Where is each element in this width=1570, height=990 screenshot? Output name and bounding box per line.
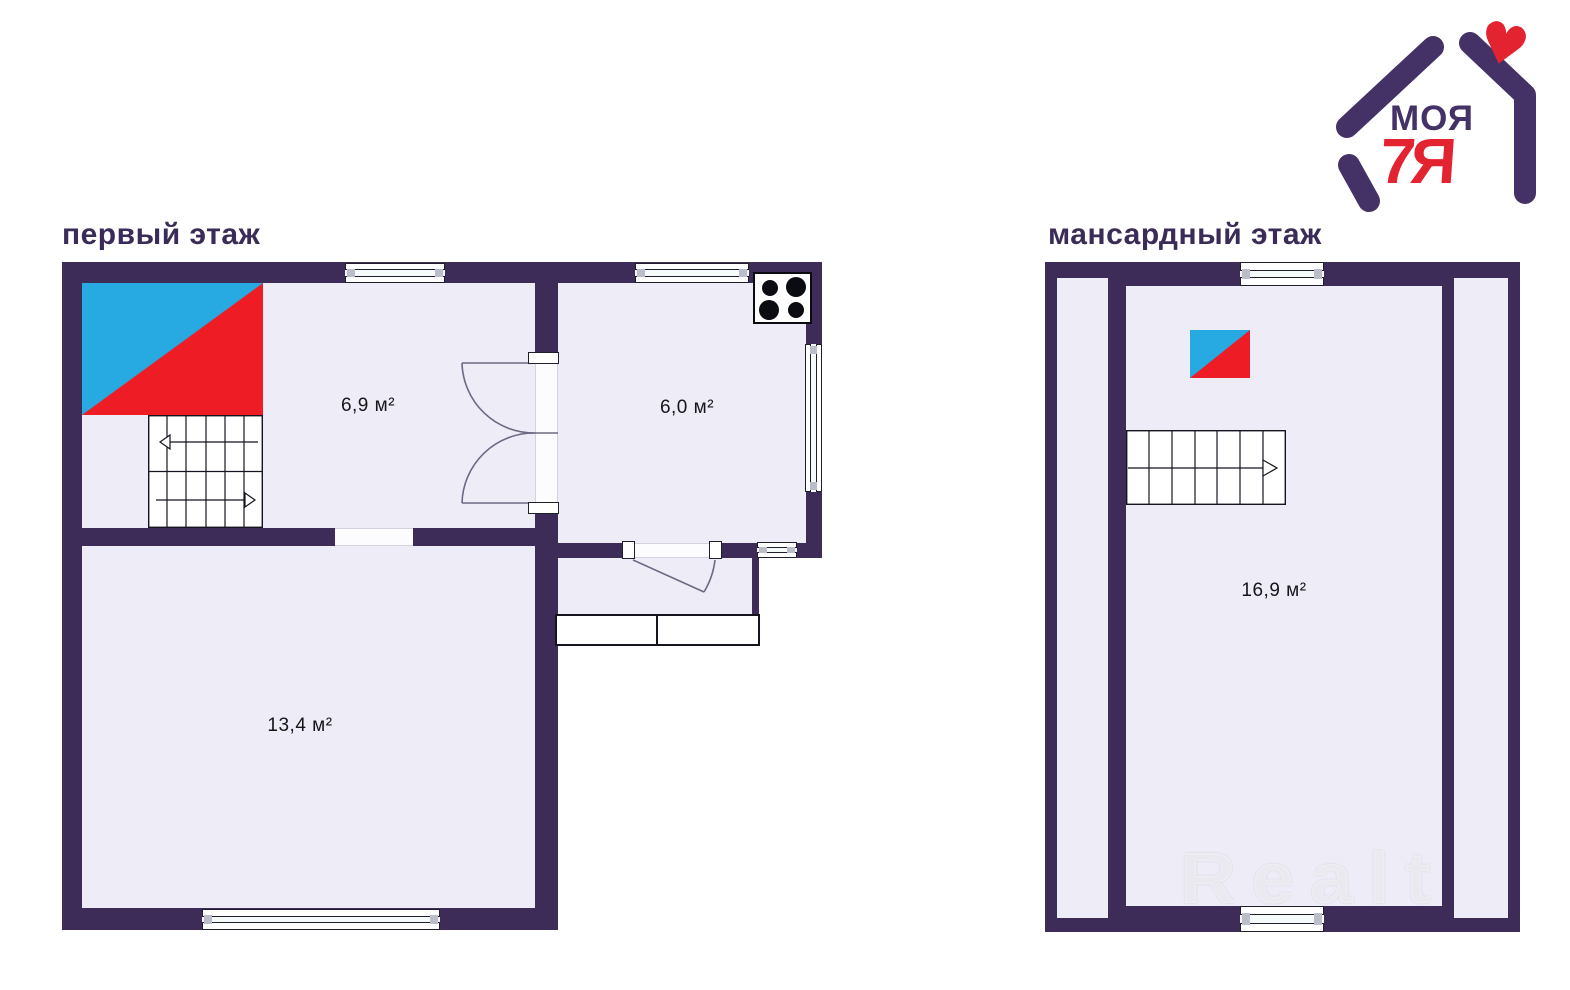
direction-marker-icon: [82, 283, 263, 415]
window-pane: [635, 269, 749, 276]
porch-wall: [752, 558, 759, 614]
window: [1240, 262, 1324, 286]
window-cap: [430, 915, 438, 924]
window-cap: [810, 482, 817, 490]
realt-watermark: Realt: [1180, 838, 1446, 920]
room-area-label: 16,9 м²: [1241, 580, 1306, 602]
stove-icon: [753, 272, 812, 324]
window-cap: [810, 346, 817, 354]
doorway-opening: [335, 528, 413, 546]
room-area-label: 13,4 м²: [267, 715, 332, 737]
window-cap: [1242, 269, 1250, 280]
attic-side-strip-floor: [1454, 278, 1508, 918]
window-cap: [1314, 269, 1322, 280]
window-cap: [204, 915, 212, 924]
door-jamb: [709, 541, 722, 559]
window: [757, 542, 797, 558]
double-door-icon: [455, 355, 561, 511]
window-pane: [345, 269, 445, 276]
window-cap: [739, 269, 747, 278]
window-pane: [202, 916, 440, 924]
window-cap: [637, 269, 645, 278]
window-cap: [435, 269, 443, 278]
floor1-title: первый этаж: [62, 218, 260, 252]
window: [805, 344, 822, 492]
step-divider: [656, 616, 658, 644]
staircase-icon: [148, 415, 263, 528]
room-area-label: 6,0 м²: [660, 397, 714, 419]
attic-side-strip-floor: [1057, 278, 1108, 918]
door-jamb: [622, 541, 635, 559]
window-cap: [347, 269, 355, 278]
entry-steps: [555, 614, 760, 646]
door-jamb: [528, 502, 559, 514]
window: [345, 263, 445, 283]
logo-word-bottom: 7Я: [1377, 124, 1454, 198]
window: [635, 263, 749, 283]
floorplan-canvas: первый этаж: [0, 0, 1570, 990]
window-pane: [810, 344, 817, 492]
room-area-label: 6,9 м²: [341, 395, 395, 417]
floor2-title: мансардный этаж: [1048, 218, 1322, 252]
window-cap: [787, 547, 795, 554]
window-cap: [759, 547, 767, 554]
window: [202, 909, 440, 930]
direction-marker-icon: [1190, 330, 1250, 378]
staircase-icon: [1126, 430, 1286, 505]
door-jamb: [528, 352, 559, 364]
window-pane: [1240, 270, 1324, 279]
